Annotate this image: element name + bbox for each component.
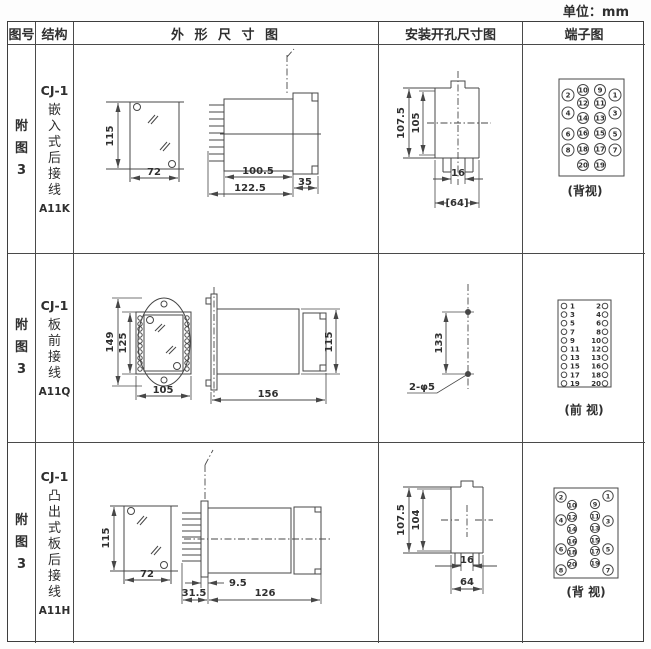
dim-panel-height: 125: [118, 333, 129, 354]
svg-text:14: 14: [578, 115, 588, 123]
svg-text:16: 16: [591, 363, 601, 371]
svg-text:19: 19: [570, 380, 580, 388]
svg-text:15: 15: [590, 536, 600, 544]
view-label: (前 视): [564, 402, 603, 417]
svg-text:13: 13: [595, 115, 605, 123]
svg-text:10: 10: [578, 87, 588, 95]
model-name: CJ-1: [41, 83, 69, 98]
header-figure: 图号: [8, 22, 36, 45]
dim-length: 126: [255, 588, 276, 599]
svg-text:17: 17: [590, 547, 599, 555]
terminal-drawing-a11q: 12 34 56 78 910 1112 1313 1516 1718 1920…: [523, 254, 644, 442]
structure-desc: 凸出式板后接线: [47, 489, 62, 601]
mounting-cell-row3: 107.5 104 16 64: [379, 443, 523, 643]
dimensions: 133 2-φ5: [407, 312, 474, 393]
svg-text:3: 3: [606, 517, 611, 525]
model-code: A11Q: [39, 386, 71, 398]
mounting-drawing-a11k: 107.5 105 16 [64]: [379, 45, 522, 253]
dim-slot: 16: [460, 555, 474, 566]
dim-holes: 2-φ5: [409, 382, 435, 393]
dim-slot: 16: [451, 168, 465, 179]
svg-text:2: 2: [559, 493, 564, 501]
dim-height: 115: [101, 528, 112, 549]
dim-height: 115: [324, 332, 335, 353]
dim-flange: 35: [298, 177, 312, 188]
svg-text:6: 6: [566, 131, 571, 139]
outline-drawing-a11h: 115 72 9.5 31.5 126: [74, 443, 378, 642]
svg-text:7: 7: [606, 566, 611, 574]
outline-drawing-a11k: 115 72 100.5 122.5 35: [74, 45, 378, 253]
svg-text:4: 4: [596, 311, 601, 319]
dim-depth: 31.5: [182, 588, 207, 599]
terminal-drawing-a11k: 10 12 14 16 18 20 9 11 13 15 17 19 2 4 6…: [523, 45, 644, 253]
svg-text:7: 7: [570, 328, 575, 336]
dim-width: 64: [460, 577, 474, 588]
outline-cell-row2: 149 125 105 156 115: [74, 254, 379, 443]
dim-width: 72: [140, 569, 154, 580]
structure-cell-row2: CJ-1 板前接线 A11Q: [36, 254, 74, 443]
svg-text:11: 11: [595, 100, 605, 108]
svg-text:1: 1: [606, 492, 611, 500]
model-code: A11H: [39, 605, 71, 617]
svg-text:5: 5: [570, 320, 575, 328]
svg-text:18: 18: [591, 371, 601, 379]
outline-drawing-a11q: 149 125 105 156 115: [74, 254, 378, 442]
svg-text:16: 16: [567, 537, 577, 545]
svg-text:3: 3: [613, 110, 618, 118]
svg-text:4: 4: [559, 516, 564, 524]
figure-number: 附图3: [14, 116, 29, 182]
svg-text:13: 13: [591, 354, 601, 362]
dimensions: 107.5 105 16 [64]: [396, 89, 483, 209]
svg-text:1: 1: [570, 303, 575, 311]
svg-text:8: 8: [566, 147, 571, 155]
svg-text:12: 12: [591, 346, 601, 354]
svg-text:12: 12: [578, 100, 588, 108]
svg-text:13: 13: [570, 354, 580, 362]
svg-text:10: 10: [591, 337, 601, 345]
structure-desc: 嵌入式后接线: [47, 103, 62, 199]
figure-number: 附图3: [14, 510, 29, 576]
model-name: CJ-1: [41, 469, 69, 484]
svg-text:7: 7: [613, 147, 618, 155]
terminal-pins: 2 4 6 8 10 12 14 16 18 20 9 11 13 15 17 …: [556, 491, 613, 575]
svg-text:20: 20: [567, 560, 577, 568]
svg-text:9: 9: [598, 87, 603, 95]
structure-cell-row1: CJ-1 嵌入式后接线 A11K: [36, 45, 74, 254]
terminal-cell-row3: 2 4 6 8 10 12 14 16 18 20 9 11 13 15 17 …: [523, 443, 645, 643]
model-name: CJ-1: [41, 298, 69, 313]
dimensions: 115 72 9.5 31.5 126: [101, 507, 321, 604]
svg-text:11: 11: [590, 512, 600, 520]
terminal-drawing-a11h: 2 4 6 8 10 12 14 16 18 20 9 11 13 15 17 …: [523, 443, 644, 642]
svg-text:3: 3: [570, 311, 575, 319]
svg-text:15: 15: [595, 130, 605, 138]
dimension-table: 图号 结构 外 形 尺 寸 图 安装开孔尺寸图 端子图 附图3 CJ-1 嵌入式…: [7, 21, 644, 642]
unit-label: 单位：mm: [563, 1, 629, 20]
svg-text:16: 16: [578, 130, 588, 138]
svg-text:19: 19: [590, 559, 600, 567]
svg-text:2: 2: [596, 303, 601, 311]
mounting-drawing-a11h: 107.5 104 16 64: [379, 443, 522, 642]
header-mounting: 安装开孔尺寸图: [379, 22, 523, 45]
dim-width: [64]: [445, 198, 468, 209]
svg-text:6: 6: [596, 320, 601, 328]
svg-text:18: 18: [567, 548, 577, 556]
front-view: [136, 298, 191, 386]
side-view: [182, 450, 332, 577]
svg-text:17: 17: [570, 371, 580, 379]
mounting-cell-row2: 133 2-φ5: [379, 254, 523, 443]
dim-width: 105: [153, 385, 174, 396]
figure-cell-row2: 附图3: [8, 254, 36, 443]
svg-text:15: 15: [570, 363, 580, 371]
header-terminal: 端子图: [523, 22, 645, 45]
header-outline: 外 形 尺 寸 图: [74, 22, 379, 45]
svg-text:12: 12: [567, 513, 576, 521]
svg-text:20: 20: [578, 162, 588, 170]
svg-text:4: 4: [566, 110, 571, 118]
dimensions: 107.5 104 16 64: [396, 488, 497, 594]
dim-width: 72: [147, 167, 161, 178]
terminal-pins: 12 34 56 78 910 1112 1313 1516 1718 1920: [561, 303, 608, 388]
mounting-drawing-a11q: 133 2-φ5: [379, 254, 522, 442]
dim-h-inner: 105: [411, 113, 422, 134]
figure-cell-row1: 附图3: [8, 45, 36, 254]
view-label: (背视): [568, 183, 603, 198]
svg-text:9: 9: [570, 337, 575, 345]
dim-length: 156: [258, 389, 279, 400]
svg-text:19: 19: [595, 162, 605, 170]
figure-number: 附图3: [14, 315, 29, 381]
svg-text:1: 1: [613, 92, 618, 100]
dim-height: 115: [105, 126, 116, 147]
mounting-cell-row1: 107.5 105 16 [64]: [379, 45, 523, 254]
svg-text:11: 11: [570, 346, 580, 354]
structure-desc: 板前接线: [47, 318, 62, 382]
model-code: A11K: [39, 203, 70, 215]
terminal-cell-row2: 12 34 56 78 910 1112 1313 1516 1718 1920…: [523, 254, 645, 443]
header-structure: 结构: [36, 22, 74, 45]
dimensions: 149 125 105 156 115: [105, 298, 340, 404]
dim-spacing: 133: [434, 333, 445, 354]
dim-h-outer: 107.5: [396, 504, 407, 536]
side-view: [206, 287, 326, 397]
view-label: (背 视): [566, 584, 605, 599]
figure-cell-row3: 附图3: [8, 443, 36, 643]
svg-text:10: 10: [567, 501, 577, 509]
terminal-dots: [138, 316, 189, 371]
terminal-cell-row1: 10 12 14 16 18 20 9 11 13 15 17 19 2 4 6…: [523, 45, 645, 254]
side-view: [209, 49, 321, 174]
dim-total-length: 122.5: [234, 183, 266, 194]
svg-text:5: 5: [613, 131, 618, 139]
svg-text:13: 13: [590, 524, 599, 532]
terminal-pins: 10 12 14 16 18 20 9 11 13 15 17 19 2 4 6…: [562, 85, 621, 171]
outline-cell-row3: 115 72 9.5 31.5 126: [74, 443, 379, 643]
svg-text:18: 18: [578, 146, 588, 154]
svg-text:17: 17: [595, 146, 605, 154]
svg-text:8: 8: [596, 328, 601, 336]
svg-text:14: 14: [567, 525, 577, 533]
dimensions: 115 72 100.5 122.5 35: [105, 103, 318, 197]
svg-text:6: 6: [559, 545, 564, 553]
svg-text:2: 2: [566, 92, 571, 100]
dim-plate: 9.5: [229, 578, 247, 589]
structure-cell-row3: CJ-1 凸出式板后接线 A11H: [36, 443, 74, 643]
dim-body-length: 100.5: [242, 166, 274, 177]
dim-oval-height: 149: [105, 332, 116, 353]
dim-h-outer: 107.5: [396, 107, 407, 139]
outline-cell-row1: 115 72 100.5 122.5 35: [74, 45, 379, 254]
svg-text:20: 20: [591, 380, 601, 388]
svg-text:5: 5: [606, 545, 611, 553]
svg-text:9: 9: [593, 500, 598, 508]
dim-h-inner: 104: [411, 510, 422, 531]
svg-text:8: 8: [559, 566, 564, 574]
